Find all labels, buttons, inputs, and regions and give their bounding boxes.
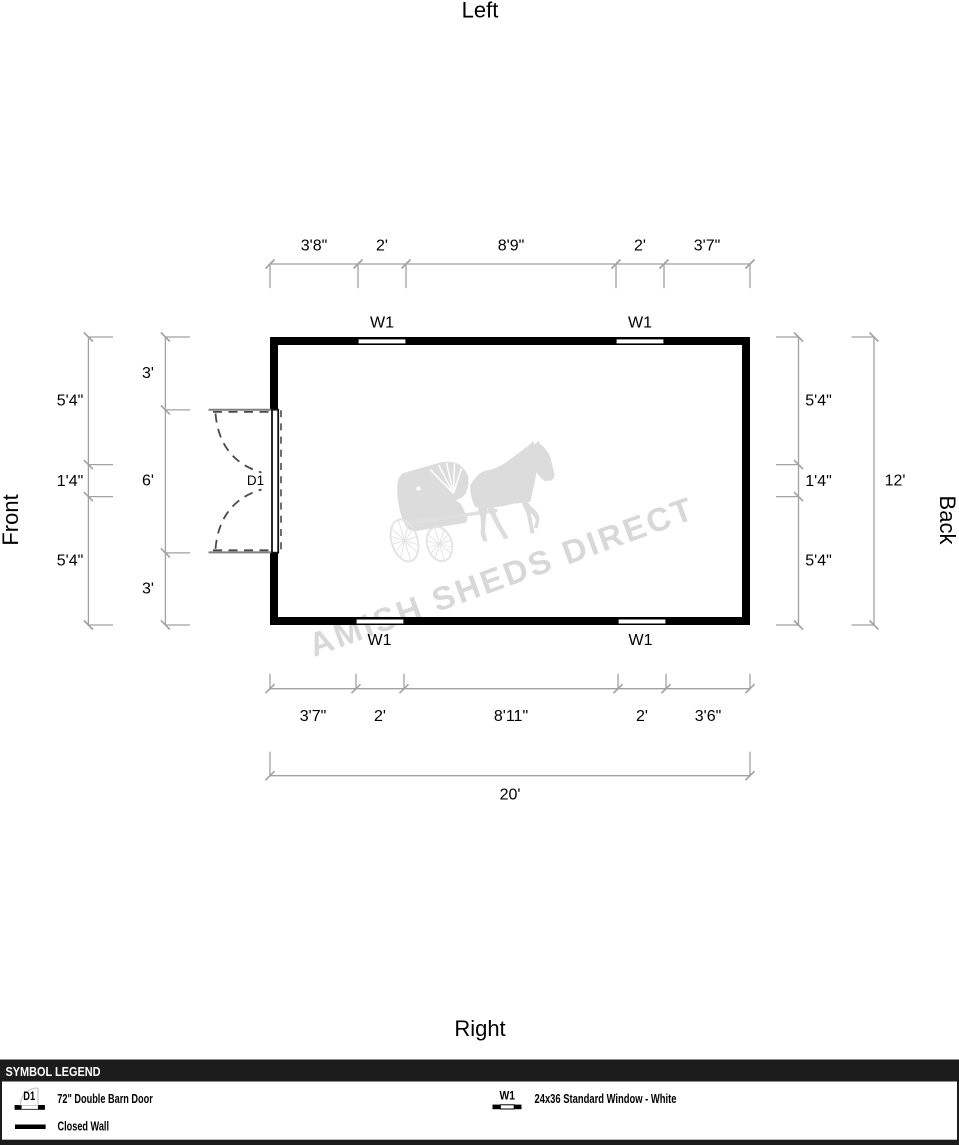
- svg-text:24x36 Standard Window - White: 24x36 Standard Window - White: [535, 1092, 677, 1106]
- svg-text:SYMBOL LEGEND: SYMBOL LEGEND: [6, 1065, 101, 1079]
- svg-text:5'4": 5'4": [57, 393, 84, 410]
- svg-text:5'4": 5'4": [805, 393, 832, 410]
- svg-text:W1: W1: [368, 632, 392, 649]
- svg-text:Left: Left: [462, 0, 499, 23]
- svg-text:3'7": 3'7": [694, 237, 721, 254]
- svg-text:Back: Back: [935, 496, 959, 546]
- svg-text:W1: W1: [370, 315, 394, 332]
- svg-text:1'4": 1'4": [57, 473, 84, 490]
- svg-text:Front: Front: [0, 494, 23, 545]
- svg-text:12': 12': [885, 473, 906, 490]
- svg-text:1'4": 1'4": [805, 473, 832, 490]
- svg-text:72" Double Barn Door: 72" Double Barn Door: [57, 1092, 153, 1106]
- svg-text:Closed Wall: Closed Wall: [58, 1120, 110, 1134]
- svg-text:D1: D1: [247, 473, 264, 488]
- svg-text:6': 6': [142, 473, 154, 490]
- svg-text:2': 2': [636, 708, 648, 725]
- svg-text:W1: W1: [628, 315, 652, 332]
- svg-text:2': 2': [374, 708, 386, 725]
- svg-text:3'8": 3'8": [301, 237, 328, 254]
- svg-text:W1: W1: [629, 632, 653, 649]
- svg-text:Right: Right: [454, 1016, 505, 1041]
- svg-text:2': 2': [634, 237, 646, 254]
- svg-text:8'9": 8'9": [498, 237, 525, 254]
- svg-text:3': 3': [142, 580, 154, 597]
- svg-text:20': 20': [500, 787, 521, 804]
- svg-text:3': 3': [142, 365, 154, 382]
- svg-text:5'4": 5'4": [57, 552, 84, 569]
- svg-text:W1: W1: [500, 1088, 516, 1102]
- svg-text:D1: D1: [23, 1089, 35, 1103]
- svg-text:3'6": 3'6": [695, 708, 722, 725]
- svg-text:3'7": 3'7": [300, 708, 327, 725]
- svg-text:2': 2': [376, 237, 388, 254]
- svg-text:8'11": 8'11": [494, 708, 528, 725]
- svg-text:5'4": 5'4": [805, 552, 832, 569]
